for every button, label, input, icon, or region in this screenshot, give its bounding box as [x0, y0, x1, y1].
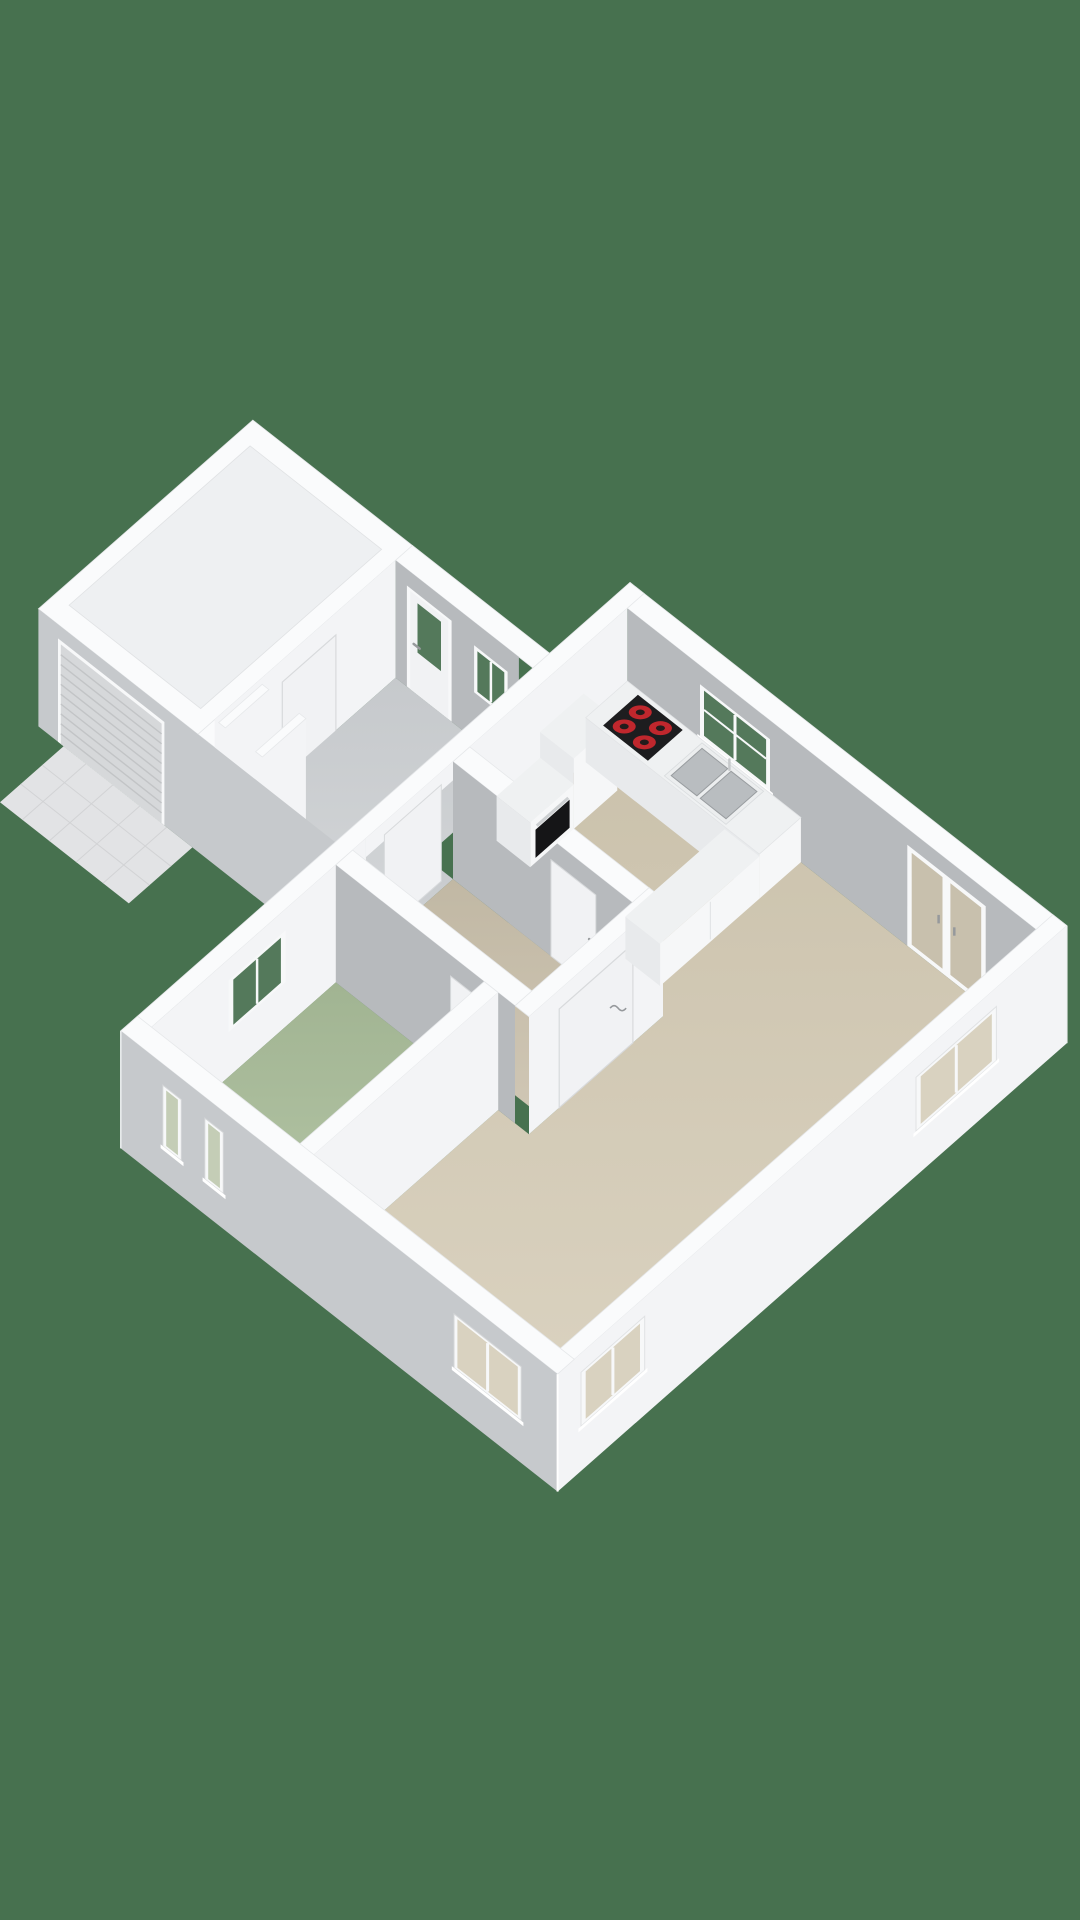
- floorplan-3d-render: [0, 0, 1080, 1920]
- floorplan-canvas: [0, 0, 1080, 1920]
